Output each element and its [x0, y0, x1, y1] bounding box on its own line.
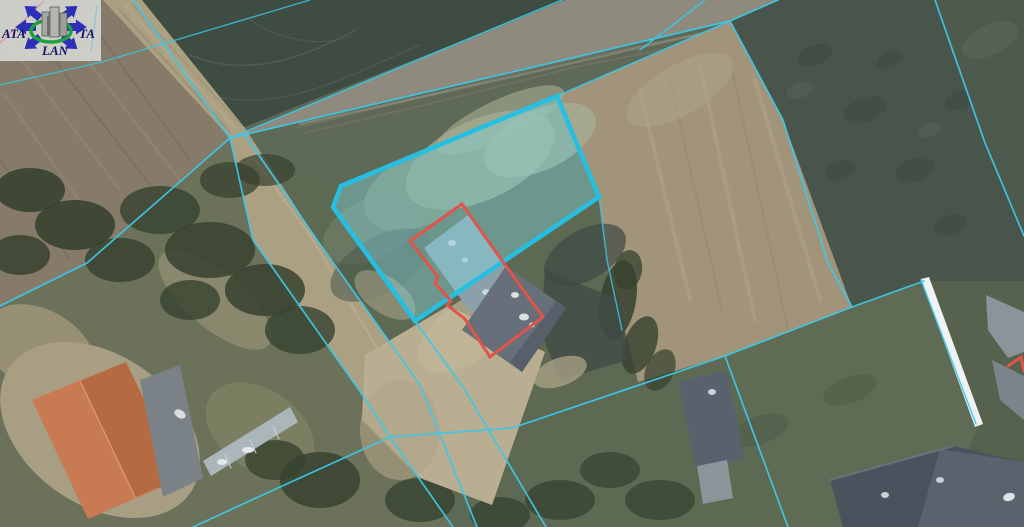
roof-skylight — [511, 292, 519, 298]
construction-sand — [360, 380, 440, 480]
tree — [85, 238, 155, 282]
tree — [160, 280, 220, 320]
tree — [625, 480, 695, 520]
watermark-text-right: TA — [79, 27, 95, 40]
agency-watermark: ATA TA LAN — [0, 0, 101, 61]
roof-skylight — [708, 389, 716, 395]
tree — [580, 452, 640, 488]
tree — [235, 154, 295, 186]
watermark-text-bottom: LAN — [42, 44, 68, 57]
greenhouse-glint — [242, 447, 254, 453]
mid-right-house-ext — [697, 460, 733, 504]
watermark-text-left: ATA — [2, 27, 26, 40]
roof-skylight — [936, 477, 944, 483]
tree — [525, 480, 595, 520]
tree — [265, 306, 335, 354]
greenhouse-glint — [217, 459, 227, 465]
roof-skylight — [519, 314, 529, 321]
roof-skylight — [881, 492, 889, 498]
satellite-map — [0, 0, 1024, 527]
aerial-map-view: ATA TA LAN — [0, 0, 1024, 527]
